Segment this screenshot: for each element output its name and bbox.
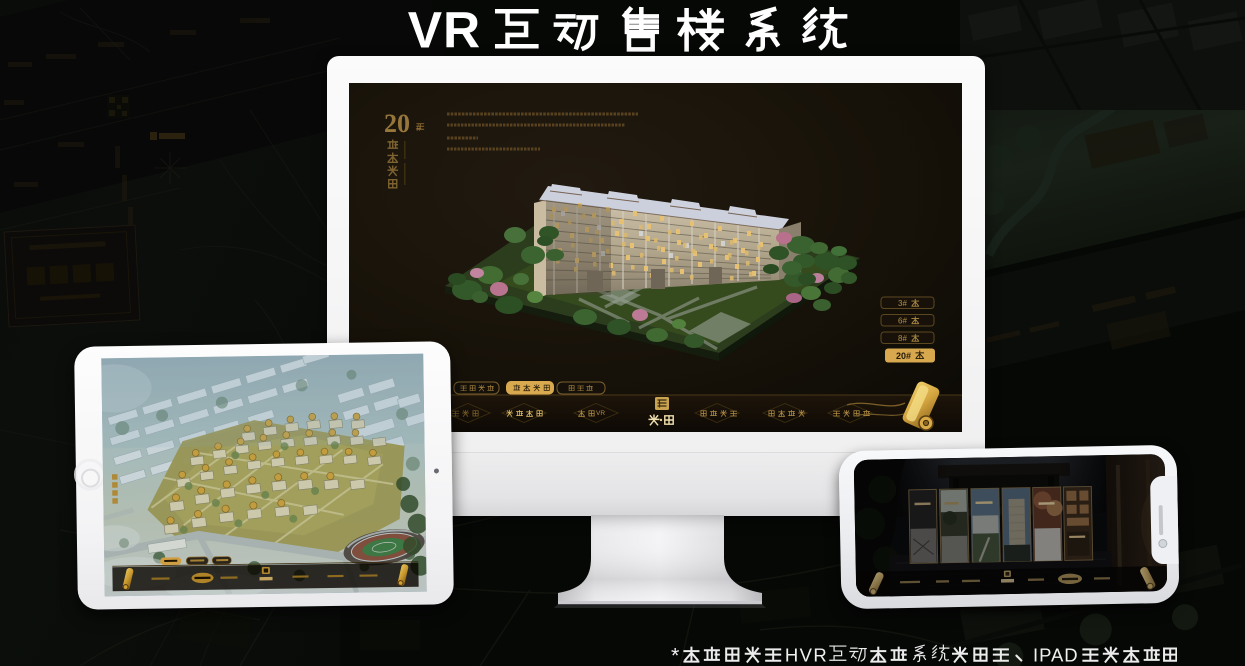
svg-text:VR: VR [596, 410, 605, 417]
svg-text:20: 20 [384, 109, 410, 138]
svg-text:HVR: HVR [785, 644, 828, 665]
svg-text:8#: 8# [898, 334, 907, 343]
svg-text:*: * [671, 643, 679, 666]
svg-text:3#: 3# [898, 299, 907, 308]
svg-text:20#: 20# [896, 351, 911, 361]
svg-text:IPAD: IPAD [1033, 644, 1079, 665]
svg-text:VR: VR [408, 2, 482, 55]
svg-text:6#: 6# [898, 317, 907, 326]
